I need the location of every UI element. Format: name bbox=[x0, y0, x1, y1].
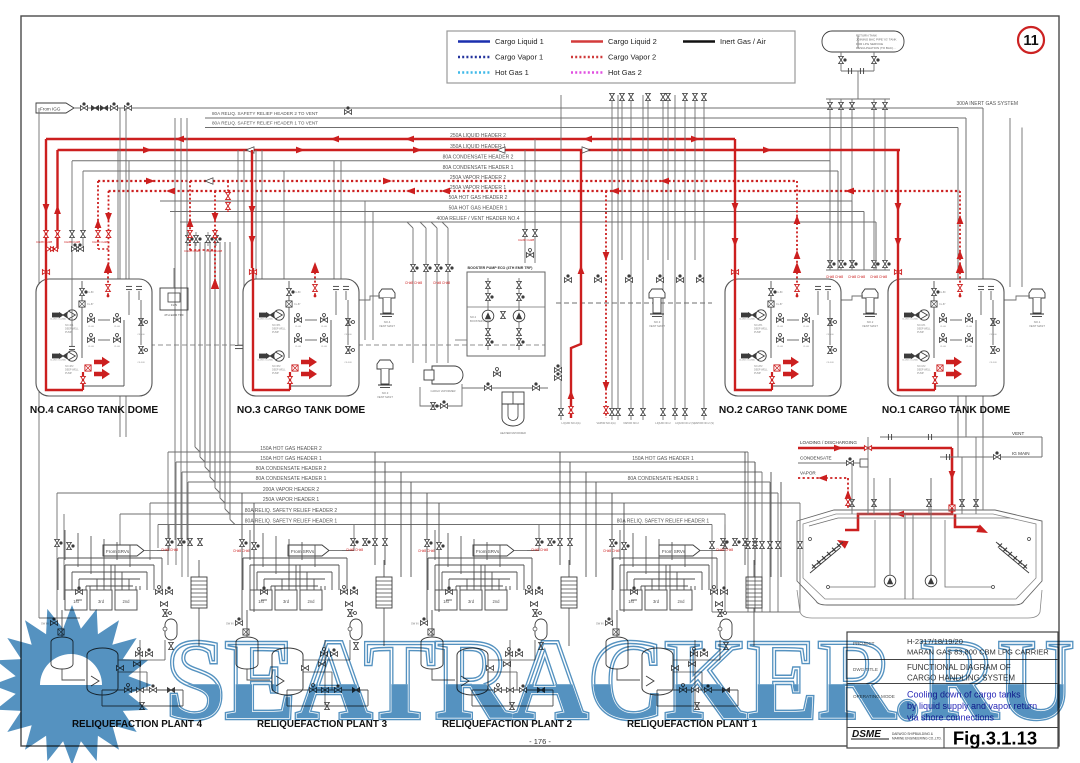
svg-text:LIQUID NO.2: LIQUID NO.2 bbox=[655, 421, 671, 425]
svg-text:VAPOR NO.2 (S): VAPOR NO.2 (S) bbox=[694, 421, 714, 425]
svg-text:From IGG: From IGG bbox=[40, 106, 61, 111]
svg-text:CL-87: CL-87 bbox=[776, 303, 783, 306]
svg-text:CH#8 CH#8: CH#8 CH#8 bbox=[531, 548, 548, 552]
svg-text:CL-80: CL-80 bbox=[114, 346, 121, 348]
svg-text:2nd: 2nd bbox=[678, 599, 686, 604]
svg-text:CH#8 CH#8: CH#8 CH#8 bbox=[36, 240, 53, 244]
svg-text:CL-80: CL-80 bbox=[776, 291, 783, 294]
svg-text:VENT MAST: VENT MAST bbox=[379, 324, 395, 328]
svg-text:CL-80: CL-80 bbox=[321, 326, 328, 328]
svg-text:From SRVs: From SRVs bbox=[291, 549, 315, 554]
svg-text:250A VAPOR HEADER 1: 250A VAPOR HEADER 1 bbox=[450, 185, 507, 191]
svg-text:CL-80: CL-80 bbox=[777, 346, 784, 348]
svg-text:PUMP: PUMP bbox=[917, 331, 924, 334]
svg-text:CF-500: CF-500 bbox=[344, 334, 352, 336]
svg-text:VENT MAST: VENT MAST bbox=[649, 324, 665, 328]
svg-text:CF-509: CF-509 bbox=[989, 362, 997, 364]
svg-text:VENT MAST: VENT MAST bbox=[862, 324, 878, 328]
svg-text:Hot Gas 2: Hot Gas 2 bbox=[608, 68, 642, 77]
svg-text:2nd: 2nd bbox=[493, 599, 501, 604]
svg-text:PUMP: PUMP bbox=[65, 331, 72, 334]
svg-text:CL-80: CL-80 bbox=[777, 326, 784, 328]
svg-text:PUMP: PUMP bbox=[754, 372, 761, 375]
svg-text:LIQUID NO.2(A): LIQUID NO.2(A) bbox=[562, 421, 581, 425]
svg-text:From SRVs: From SRVs bbox=[662, 549, 686, 554]
svg-text:CL-80: CL-80 bbox=[803, 326, 810, 328]
svg-text:CH#8 CH#8: CH#8 CH#8 bbox=[826, 275, 843, 279]
svg-text:CARGO VAPORIZER: CARGO VAPORIZER bbox=[430, 389, 455, 393]
svg-text:PUMP: PUMP bbox=[272, 331, 279, 334]
svg-text:80A CONDENSATE HEADER 2: 80A CONDENSATE HEADER 2 bbox=[443, 155, 514, 161]
svg-text:FLW: FLW bbox=[171, 303, 177, 307]
svg-text:CL-80: CL-80 bbox=[321, 346, 328, 348]
svg-text:150A HOT GAS HEADER 1: 150A HOT GAS HEADER 1 bbox=[260, 456, 322, 462]
svg-text:3rd: 3rd bbox=[468, 599, 475, 604]
svg-text:Hot Gas 1: Hot Gas 1 bbox=[495, 68, 529, 77]
svg-text:Cargo Vapor 2: Cargo Vapor 2 bbox=[608, 53, 656, 62]
svg-text:VENT: VENT bbox=[1012, 431, 1024, 436]
svg-text:CH#8 CH#8: CH#8 CH#8 bbox=[64, 240, 81, 244]
svg-text:NO.2: NO.2 bbox=[470, 315, 477, 319]
svg-text:NO.3 CARGO TANK DOME: NO.3 CARGO TANK DOME bbox=[237, 405, 365, 416]
svg-text:CH#8 CH#8: CH#8 CH#8 bbox=[518, 238, 535, 242]
svg-text:PUMP: PUMP bbox=[272, 372, 279, 375]
svg-text:80A CONDENSATE HEADER 1: 80A CONDENSATE HEADER 1 bbox=[256, 476, 327, 482]
svg-text:NO.2 CARGO TANK DOME: NO.2 CARGO TANK DOME bbox=[719, 405, 847, 416]
svg-text:250A LIQUID HEADER 2: 250A LIQUID HEADER 2 bbox=[450, 133, 506, 139]
svg-text:PUMP: PUMP bbox=[754, 331, 761, 334]
svg-text:CL-80C CL-80A: CL-80C CL-80A bbox=[50, 359, 66, 362]
svg-text:PUMP: PUMP bbox=[917, 372, 924, 375]
svg-text:CL-87: CL-87 bbox=[294, 303, 301, 306]
svg-text:80A RELIQ. SAFETY RELIEF HEADE: 80A RELIQ. SAFETY RELIEF HEADER 1 bbox=[245, 518, 338, 524]
svg-text:VENT MAST: VENT MAST bbox=[1029, 324, 1045, 328]
svg-text:400A RELIEF / VENT HEADER NO.4: 400A RELIEF / VENT HEADER NO.4 bbox=[437, 216, 520, 222]
svg-text:IG MAIN: IG MAIN bbox=[1012, 451, 1030, 456]
svg-text:80A CONDENSATE HEADER 1: 80A CONDENSATE HEADER 1 bbox=[443, 165, 514, 171]
svg-text:3rd: 3rd bbox=[283, 599, 290, 604]
svg-text:HEATER/VAPORIZER: HEATER/VAPORIZER bbox=[500, 431, 526, 435]
svg-text:CF-500: CF-500 bbox=[826, 334, 834, 336]
svg-text:LIQUID NO.2 (S): LIQUID NO.2 (S) bbox=[675, 421, 695, 425]
svg-text:LOADING / DISCHARGING: LOADING / DISCHARGING bbox=[800, 440, 857, 445]
svg-text:CH#8 CH#8: CH#8 CH#8 bbox=[433, 281, 450, 285]
svg-text:3rd: 3rd bbox=[653, 599, 660, 604]
svg-text:200A VAPOR HEADER 2: 200A VAPOR HEADER 2 bbox=[263, 487, 320, 493]
svg-text:80A RELIQ. SAFETY RELIEF HEADE: 80A RELIQ. SAFETY RELIEF HEADER 1 bbox=[617, 518, 710, 524]
svg-text:VENT MAST: VENT MAST bbox=[377, 395, 393, 399]
svg-text:CL-80: CL-80 bbox=[294, 291, 301, 294]
svg-text:CH#8 CH#8: CH#8 CH#8 bbox=[418, 549, 435, 553]
svg-text:50A HOT GAS HEADER 2: 50A HOT GAS HEADER 2 bbox=[449, 195, 508, 201]
svg-text:250A VAPOR HEADER 1: 250A VAPOR HEADER 1 bbox=[263, 497, 320, 503]
svg-text:3rd: 3rd bbox=[98, 599, 105, 604]
svg-text:DESULPHATION (TO BAC)...: DESULPHATION (TO BAC)... bbox=[856, 46, 896, 50]
svg-text:150A HOT GAS HEADER 1: 150A HOT GAS HEADER 1 bbox=[632, 456, 694, 462]
svg-text:Cargo Liquid 2: Cargo Liquid 2 bbox=[608, 37, 657, 46]
svg-text:CONDENSATE: CONDENSATE bbox=[800, 456, 832, 461]
svg-text:Cargo Liquid 1: Cargo Liquid 1 bbox=[495, 37, 544, 46]
svg-text:VAPOR: VAPOR bbox=[800, 471, 816, 476]
svg-text:CL-80: CL-80 bbox=[940, 326, 947, 328]
svg-text:350A LIQUID HEADER 1: 350A LIQUID HEADER 1 bbox=[450, 144, 506, 150]
svg-text:CL-87: CL-87 bbox=[939, 303, 946, 306]
svg-text:From SRVs: From SRVs bbox=[476, 549, 500, 554]
svg-text:CF-509: CF-509 bbox=[137, 362, 145, 364]
svg-text:2nd: 2nd bbox=[123, 599, 131, 604]
svg-text:300A INERT GAS SYSTEM: 300A INERT GAS SYSTEM bbox=[956, 101, 1018, 107]
svg-text:CF-509: CF-509 bbox=[344, 362, 352, 364]
svg-text:Cargo Vapor 1: Cargo Vapor 1 bbox=[495, 53, 543, 62]
svg-text:CH#8 CH#8: CH#8 CH#8 bbox=[603, 549, 620, 553]
svg-text:BOOSTER PUMP: BOOSTER PUMP bbox=[470, 319, 491, 323]
svg-text:CL-80: CL-80 bbox=[295, 346, 302, 348]
svg-text:VAPOR NO.2(A): VAPOR NO.2(A) bbox=[596, 421, 615, 425]
svg-text:CH#8 CH#8: CH#8 CH#8 bbox=[161, 548, 178, 552]
svg-text:CL-80C CL-80A: CL-80C CL-80A bbox=[739, 359, 755, 362]
svg-text:CF-500: CF-500 bbox=[989, 334, 997, 336]
svg-text:CL-80C CL-80A: CL-80C CL-80A bbox=[257, 318, 273, 321]
svg-text:CL-80: CL-80 bbox=[295, 326, 302, 328]
svg-text:CH#8 CH#8: CH#8 CH#8 bbox=[92, 240, 109, 244]
svg-text:CH#8 CH#8: CH#8 CH#8 bbox=[716, 548, 733, 552]
svg-text:CF-500: CF-500 bbox=[137, 334, 145, 336]
svg-text:CH#8 CH#8: CH#8 CH#8 bbox=[233, 549, 250, 553]
svg-text:From SRVs: From SRVs bbox=[106, 549, 130, 554]
svg-text:80A CONDENSATE HEADER 2: 80A CONDENSATE HEADER 2 bbox=[256, 466, 327, 472]
svg-text:CL-80C CL-80A: CL-80C CL-80A bbox=[739, 318, 755, 321]
svg-text:CL-80: CL-80 bbox=[966, 346, 973, 348]
svg-text:SEATRACKER.RU: SEATRACKER.RU bbox=[166, 616, 1074, 743]
svg-text:CL-80: CL-80 bbox=[88, 326, 95, 328]
svg-text:PUMP: PUMP bbox=[65, 372, 72, 375]
svg-text:80A RELIQ. SAFETY RELIEF HEADE: 80A RELIQ. SAFETY RELIEF HEADER 2 bbox=[245, 508, 338, 514]
svg-text:CH#8 CH#8: CH#8 CH#8 bbox=[870, 275, 887, 279]
svg-text:CH#8 CH#8: CH#8 CH#8 bbox=[405, 281, 422, 285]
svg-text:CL-80: CL-80 bbox=[114, 326, 121, 328]
svg-text:CL-80: CL-80 bbox=[87, 291, 94, 294]
svg-text:VAPOR NO.2: VAPOR NO.2 bbox=[623, 421, 639, 425]
svg-text:CL-80: CL-80 bbox=[966, 326, 973, 328]
svg-text:CH#8 CH#8: CH#8 CH#8 bbox=[184, 249, 201, 253]
svg-text:CL-80C CL-80A: CL-80C CL-80A bbox=[50, 318, 66, 321]
svg-text:CL-80: CL-80 bbox=[803, 346, 810, 348]
svg-text:CH#8 CH#8: CH#8 CH#8 bbox=[848, 275, 865, 279]
svg-text:150A HOT GAS HEADER 2: 150A HOT GAS HEADER 2 bbox=[260, 446, 322, 452]
svg-text:CL-80: CL-80 bbox=[88, 346, 95, 348]
svg-text:CH#8 CH#8: CH#8 CH#8 bbox=[346, 548, 363, 552]
svg-text:2nd: 2nd bbox=[308, 599, 316, 604]
svg-text:CL-80: CL-80 bbox=[939, 291, 946, 294]
svg-text:NO.4 CARGO TANK DOME: NO.4 CARGO TANK DOME bbox=[30, 405, 158, 416]
svg-text:50A HOT GAS HEADER 1: 50A HOT GAS HEADER 1 bbox=[449, 205, 508, 211]
svg-text:80A RELIQ. SAFETY RELIEF HEADE: 80A RELIQ. SAFETY RELIEF HEADER 2 TO VEN… bbox=[212, 111, 318, 116]
svg-text:CL-80C CL-80A: CL-80C CL-80A bbox=[257, 359, 273, 362]
svg-text:CL-80: CL-80 bbox=[940, 346, 947, 348]
svg-text:CF-509: CF-509 bbox=[826, 362, 834, 364]
svg-text:BOOSTER PUMP ECO (4TH EMR TRF): BOOSTER PUMP ECO (4TH EMR TRF) bbox=[467, 266, 533, 270]
svg-text:80A CONDENSATE HEADER 1: 80A CONDENSATE HEADER 1 bbox=[628, 476, 699, 482]
svg-text:250A VAPOR HEADER 2: 250A VAPOR HEADER 2 bbox=[450, 175, 507, 181]
svg-text:CL-80C CL-80A: CL-80C CL-80A bbox=[902, 318, 918, 321]
svg-text:11: 11 bbox=[1023, 33, 1038, 49]
svg-text:NO.1 CARGO TANK DOME: NO.1 CARGO TANK DOME bbox=[882, 405, 1010, 416]
svg-text:CL-87: CL-87 bbox=[87, 303, 94, 306]
svg-text:4TH EMR TRF: 4TH EMR TRF bbox=[164, 313, 184, 317]
svg-text:CL-80C CL-80A: CL-80C CL-80A bbox=[902, 359, 918, 362]
svg-text:80A RELIQ. SAFETY RELIEF HEADE: 80A RELIQ. SAFETY RELIEF HEADER 1 TO VEN… bbox=[212, 121, 318, 126]
svg-text:Inert Gas / Air: Inert Gas / Air bbox=[720, 37, 766, 46]
